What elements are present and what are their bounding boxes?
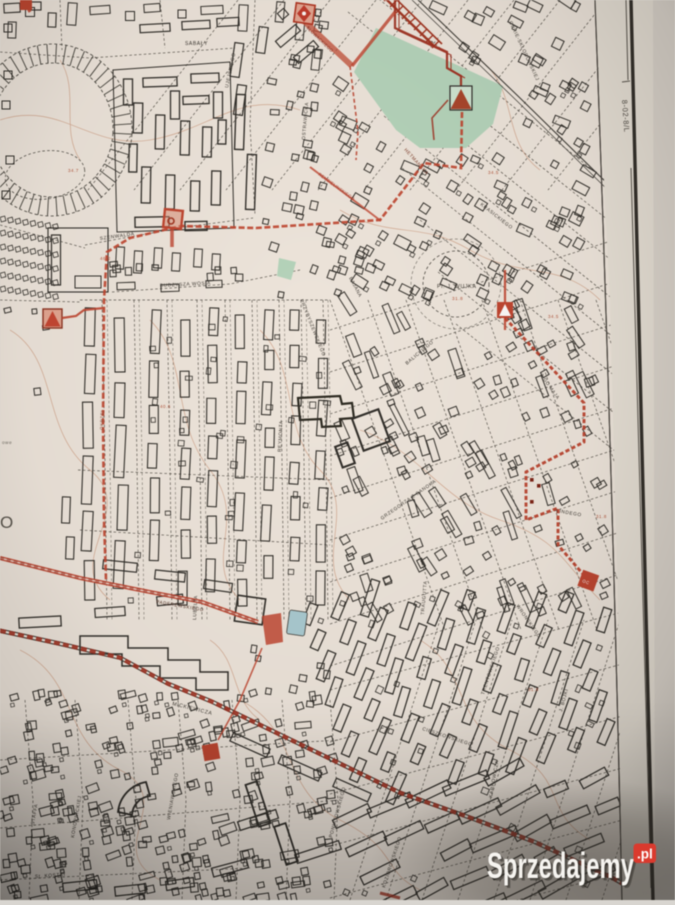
- svg-text:.pl: .pl: [637, 847, 653, 862]
- svg-text:Sprzedajemy: Sprzedajemy: [487, 845, 634, 886]
